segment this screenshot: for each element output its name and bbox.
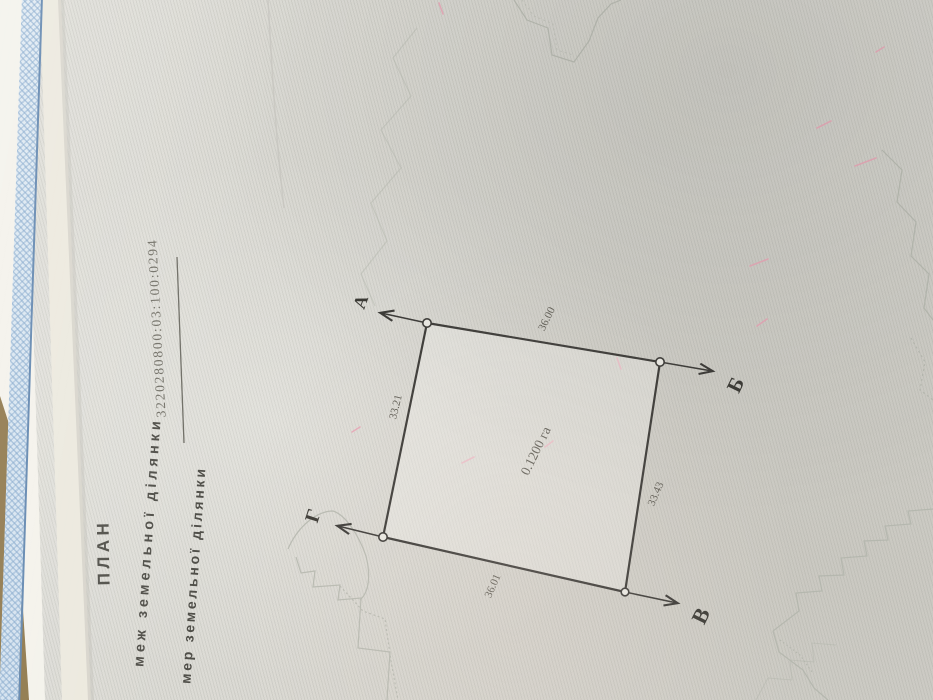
- arrow-to-B: [660, 362, 712, 371]
- parcel-boundary-polygon: [383, 323, 660, 592]
- photo-of-land-plan-document: ПЛАН меж земельної ділянки 3220280800:03…: [0, 0, 933, 700]
- printed-ink-layer: ПЛАН меж земельної ділянки 3220280800:03…: [0, 0, 933, 700]
- plan-title: ПЛАН: [93, 518, 114, 585]
- arrow-to-V: [625, 592, 677, 603]
- arrow-to-A: [381, 313, 427, 323]
- cadastral-number-blank-line: [177, 257, 184, 443]
- arrow-to-G: [338, 526, 383, 537]
- vertex-marker-G: [379, 533, 387, 541]
- vertex-marker-V: [621, 588, 629, 596]
- vertex-marker-A: [423, 319, 431, 327]
- vertex-marker-B: [656, 358, 664, 366]
